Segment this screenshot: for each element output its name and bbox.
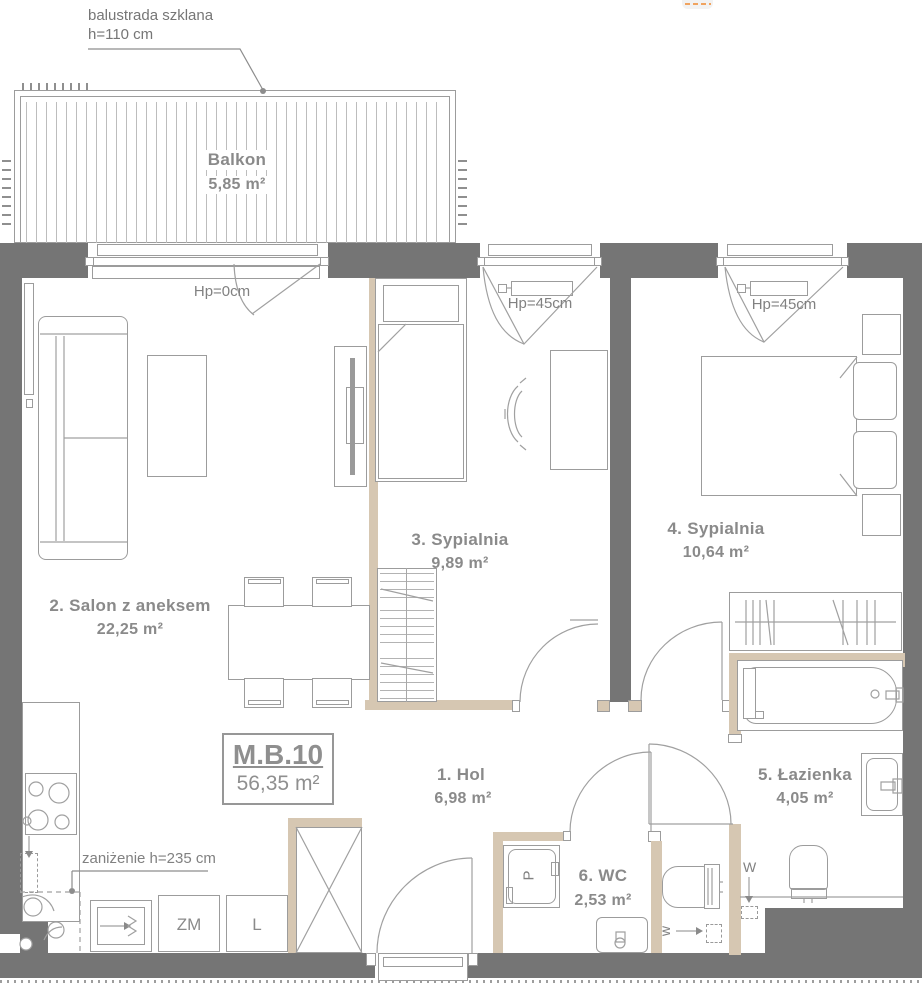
jamb-entrance-r	[468, 953, 478, 966]
bed-single-pillow	[383, 285, 459, 322]
nightstand-bottom	[862, 494, 901, 536]
jamb-entrance-l	[366, 953, 376, 966]
thermal-ticks-top	[22, 83, 88, 90]
window4-frame-cap-l	[716, 257, 724, 266]
washing-machine-drawer	[506, 887, 513, 904]
window4-frame-cap-r	[841, 257, 849, 266]
radiator-valve-salon	[26, 399, 33, 408]
radiator-salon	[24, 283, 34, 395]
wall-notch-kitchen	[0, 934, 20, 953]
wall-bottom-left	[0, 953, 375, 978]
radiator-valve-bedroom4	[737, 284, 746, 293]
room-label-sypialnia4: 4. Sypialnia	[667, 519, 764, 539]
room-area-wc: 2,53 m²	[574, 892, 631, 910]
wardrobe3-divider	[406, 568, 407, 702]
room-area-hol: 6,98 m²	[434, 790, 491, 808]
appliance-label-fridge: L	[252, 915, 261, 935]
bath-sink-basin	[866, 758, 898, 811]
tv-shelf	[346, 387, 364, 444]
bed-single-blanket	[378, 324, 464, 479]
window3-frame	[477, 257, 602, 266]
thermal-ticks-right	[458, 160, 467, 232]
partition-bath-west-lower	[729, 824, 741, 955]
wall-right	[903, 243, 922, 978]
jamb-bedroom3-door-l	[512, 700, 520, 712]
bed-double	[701, 356, 857, 496]
sofa	[38, 316, 128, 560]
room-label-sypialnia3: 3. Sypialnia	[411, 530, 508, 550]
window4-ext-sill	[727, 244, 833, 256]
room-area-lazienka: 4,05 m²	[776, 790, 833, 808]
water-note-wc: w	[657, 926, 673, 936]
window4-frame	[716, 257, 849, 266]
desk	[550, 350, 608, 470]
room-area-balkon: 5,85 m²	[203, 176, 270, 194]
appliance-label-dishwasher: ZM	[177, 915, 202, 935]
floor-plan: balustrada szklana h=110 cm Balkon 5,85 …	[0, 0, 922, 998]
wc-toilet-bowl	[662, 866, 707, 908]
partition-wc-north	[493, 832, 570, 841]
jamb-midwall-r	[628, 700, 642, 712]
room-label-balkon: Balkon	[203, 150, 271, 170]
jamb-midwall-l	[597, 700, 610, 712]
radiator-bedroom4	[750, 281, 808, 296]
dashed-utility-kitchen	[20, 853, 38, 893]
lowered-ceiling-note: zaniżenie h=235 cm	[82, 850, 216, 867]
appliance-label-washer: P	[521, 870, 538, 880]
radiator-valve-bedroom3	[498, 284, 507, 293]
room-area-sypialnia4: 10,64 m²	[683, 544, 749, 562]
coffee-table	[147, 355, 207, 477]
dashed-utility-wc	[706, 924, 722, 943]
window-note-hp45-bedroom3: Hp=45cm	[508, 295, 573, 312]
closet-wall-west	[288, 818, 296, 953]
room-label-hol: 1. Hol	[437, 765, 485, 785]
balcony-door-frame	[85, 257, 329, 266]
bed-double-pillow-top	[853, 362, 897, 420]
wall-mid-bedrooms	[610, 243, 631, 702]
wardrobe3-shelves-b	[380, 610, 434, 644]
radiator-bedroom3	[511, 281, 573, 296]
balcony-door-int-sill	[92, 266, 320, 279]
wc-sink	[596, 917, 648, 953]
window-note-hp0: Hp=0cm	[194, 283, 250, 300]
jamb-bath-west	[728, 734, 742, 743]
orange-dashes-icon	[685, 3, 711, 5]
water-note-bathroom: W	[743, 859, 756, 875]
bath-toilet-bowl	[789, 845, 828, 890]
washing-machine-panel	[551, 862, 559, 876]
balustrade-note-line1: balustrada szklana	[88, 7, 213, 24]
room-area-sypialnia3: 9,89 m²	[431, 555, 488, 573]
room-label-salon: 2. Salon z aneksem	[49, 596, 210, 616]
room-label-lazienka: 5. Łazienka	[758, 765, 852, 785]
cooktop	[25, 773, 77, 835]
balcony-decking	[26, 102, 444, 243]
hall-closet-box	[296, 827, 362, 953]
partition-wc-west	[493, 832, 503, 953]
wall-corner-block	[22, 922, 48, 953]
dining-table	[228, 605, 370, 680]
balcony-door-frame-cap-r	[320, 257, 329, 266]
balustrade-note-line2: h=110 cm	[88, 26, 153, 43]
wardrobe3-shelves-c	[380, 658, 434, 700]
wall-left	[0, 243, 22, 953]
wardrobe-bedroom4	[729, 592, 902, 651]
unit-code: M.B.10	[224, 739, 332, 771]
room-area-salon: 22,25 m²	[97, 621, 163, 639]
window3-frame-cap-l	[477, 257, 485, 266]
balcony-door-frame-cap-l	[85, 257, 94, 266]
chair-back-tl	[248, 579, 281, 584]
thermal-ticks-left	[2, 160, 11, 232]
bath-toilet-tank	[791, 888, 827, 899]
tv-screen	[350, 358, 355, 475]
wardrobe3-shelves-a	[380, 573, 434, 605]
room-label-wc: 6. WC	[579, 866, 628, 886]
partition-wc-east	[651, 841, 662, 953]
unit-total-area: 56,35 m²	[224, 772, 332, 796]
unit-info-box: M.B.10 56,35 m²	[222, 733, 334, 805]
dashed-utility-bath	[741, 906, 758, 919]
window-note-hp45-bedroom4: Hp=45cm	[752, 296, 817, 313]
bed-double-pillow-bottom	[853, 431, 897, 489]
jamb-wc-door-l	[563, 831, 571, 841]
closet-wall-top	[288, 818, 362, 827]
bathtub-step	[755, 711, 764, 719]
oven-inner	[97, 907, 145, 945]
bathtub-inner	[744, 667, 897, 724]
window3-frame-cap-r	[594, 257, 602, 266]
window3-ext-sill	[488, 244, 592, 256]
map-control-fragment[interactable]	[682, 0, 713, 9]
nightstand-top	[862, 314, 901, 355]
balcony-door-ext-sill	[97, 244, 318, 256]
wc-toilet-tank	[704, 864, 720, 909]
wall-bath-south-mass	[765, 908, 922, 978]
chair-back-br	[316, 700, 349, 705]
chair-back-tr	[316, 579, 349, 584]
chair-back-bl	[248, 700, 281, 705]
entrance-threshold-inner	[383, 957, 463, 967]
